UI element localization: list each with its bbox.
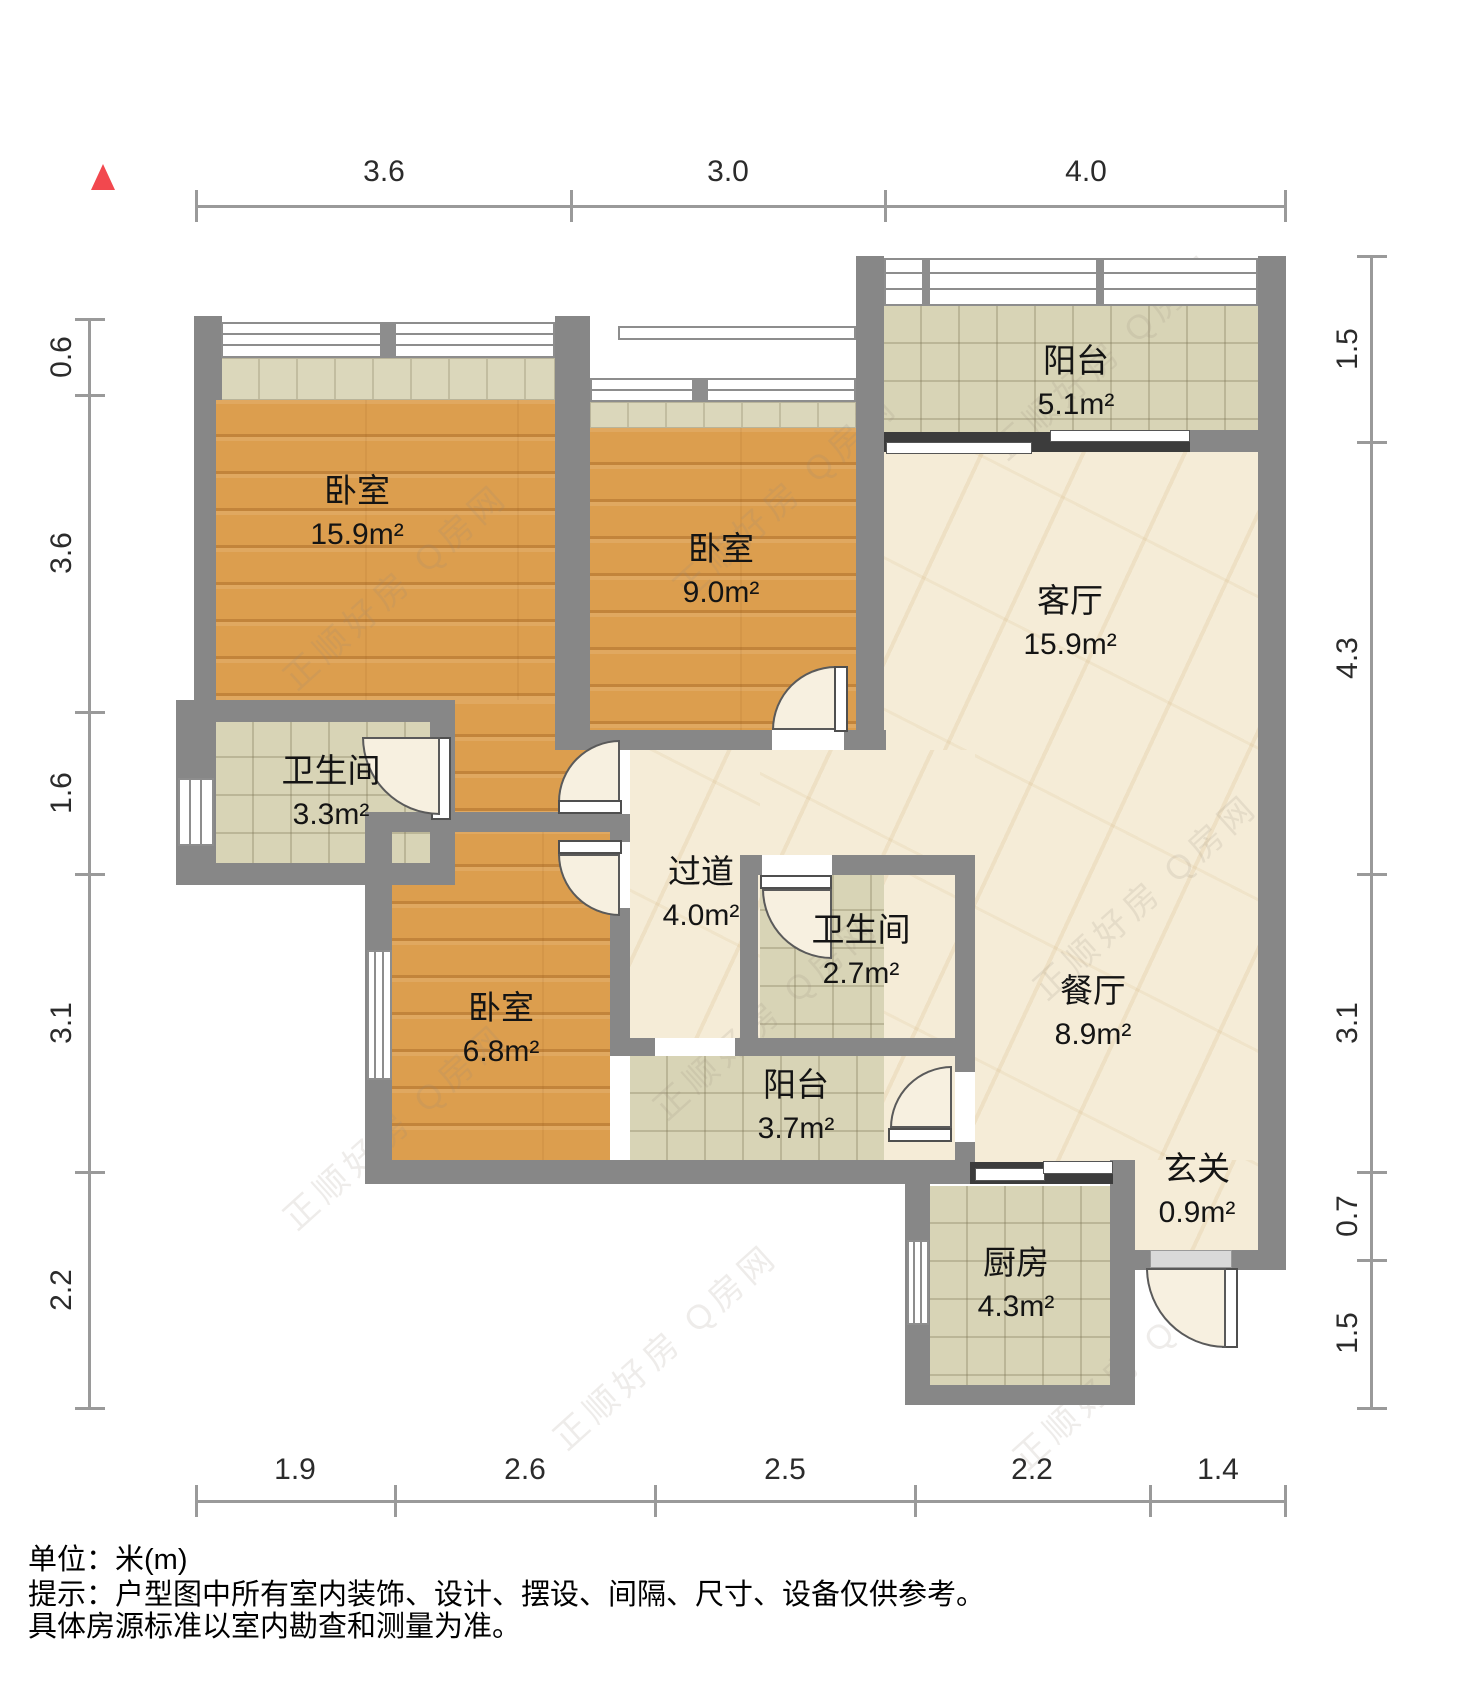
room-label-kitchen: 厨房4.3m² [978, 1240, 1055, 1328]
dim-tick [75, 1407, 105, 1410]
dim-value: 0.6 [45, 336, 79, 378]
window-line [920, 1242, 922, 1323]
dim-tick [1284, 190, 1287, 222]
wall [856, 256, 884, 750]
passage-opening [655, 1038, 735, 1056]
room-label-balcony-north: 阳台5.1m² [1038, 338, 1115, 426]
window-mullion [692, 378, 708, 402]
wall [610, 814, 630, 842]
window-bedroom-small [367, 950, 392, 1080]
room-label-bathroom-second: 卫生间2.7m² [812, 907, 911, 995]
dim-tick [654, 1485, 657, 1517]
dim-value: 2.2 [1011, 1453, 1053, 1487]
wall [365, 812, 630, 832]
window-line [886, 272, 1256, 274]
dim-line-bottom [196, 1500, 1286, 1503]
dim-value: 3.6 [363, 155, 405, 189]
dim-tick [570, 190, 573, 222]
dim-value: 2.5 [764, 1453, 806, 1487]
light-well [590, 340, 856, 378]
wall [365, 1160, 975, 1184]
window-line [592, 389, 854, 391]
sliding-door-panel [1043, 1161, 1113, 1174]
dim-line-top [196, 205, 1286, 208]
dim-tick [195, 1485, 198, 1517]
room-label-bedroom-small: 卧室6.8m² [463, 985, 540, 1073]
dim-value: 1.4 [1197, 1453, 1239, 1487]
room-label-dining-room: 餐厅8.9m² [1055, 968, 1132, 1056]
wall [1135, 1250, 1150, 1270]
dim-tick [1357, 1407, 1387, 1410]
wall [740, 875, 758, 1040]
sliding-door-panel [1050, 430, 1190, 442]
door-arc-entry [1146, 1268, 1226, 1348]
north-arrow-icon [91, 164, 115, 190]
sliding-door-panel [975, 1168, 1045, 1181]
door-opening [762, 855, 832, 875]
floor-plan: 正顺好房 Q房网 正顺好房 Q房网 正顺好房 Q房网 正顺好房 Q房网 正顺好房… [0, 0, 1466, 1688]
window-line [189, 780, 191, 844]
dim-value: 2.6 [504, 1453, 546, 1487]
dim-tick [75, 711, 105, 714]
window-mullion [380, 322, 396, 358]
dim-tick [1357, 1259, 1387, 1262]
wall [1110, 1160, 1135, 1405]
dim-value: 3.1 [1331, 1002, 1365, 1044]
dim-value: 3.1 [45, 1002, 79, 1044]
dim-value: 4.3 [1331, 637, 1365, 679]
dim-line-left [88, 319, 91, 1410]
room-label-bedroom-middle: 卧室9.0m² [683, 526, 760, 614]
wall [905, 1385, 1135, 1405]
room-label-hallway: 过道4.0m² [663, 849, 740, 937]
window-line [374, 952, 376, 1078]
wall [1232, 1250, 1286, 1270]
dim-tick [75, 873, 105, 876]
dim-value: 1.5 [1331, 328, 1365, 370]
dim-tick [75, 394, 105, 397]
dim-tick [75, 1171, 105, 1174]
dim-tick [394, 1485, 397, 1517]
dim-tick [884, 190, 887, 222]
note-tip-2: 具体房源标准以室内勘查和测量为准。 [28, 1612, 521, 1642]
window-kitchen [907, 1240, 929, 1325]
dim-tick [1149, 1485, 1152, 1517]
note-tip-1: 提示：户型图中所有室内装饰、设计、摆设、间隔、尺寸、设备仅供参考。 [28, 1580, 985, 1610]
entry-threshold [1150, 1250, 1232, 1268]
window-mullion [1096, 258, 1104, 306]
dim-tick [1357, 1171, 1387, 1174]
dim-tick [75, 318, 105, 321]
window-bathroom-master [178, 778, 214, 846]
door-leaf-bedroom-middle [834, 666, 848, 732]
dim-line-right [1370, 256, 1373, 1407]
bay-window-sill-middle [590, 402, 856, 428]
window-balcony-north [884, 258, 1258, 306]
dim-value: 1.5 [1331, 1312, 1365, 1354]
bay-window-sill-master [221, 358, 555, 400]
dim-value: 1.6 [45, 772, 79, 814]
door-leaf-balcony-south [888, 1128, 952, 1142]
dim-tick [1357, 255, 1387, 258]
door-opening [772, 730, 844, 750]
door-leaf-bedroom-master [558, 800, 622, 814]
room-label-bedroom-master: 卧室15.9m² [310, 468, 403, 556]
room-label-balcony-south: 阳台3.7m² [758, 1062, 835, 1150]
wall [1190, 430, 1258, 452]
room-label-entry: 玄关0.9m² [1159, 1146, 1236, 1234]
wall [194, 700, 455, 722]
dim-value: 4.0 [1065, 155, 1107, 189]
dim-value: 2.2 [45, 1269, 79, 1311]
window-line [913, 1242, 915, 1323]
window-outer-bedroom-middle [618, 326, 856, 340]
dim-value: 3.6 [45, 532, 79, 574]
window-mullion [922, 258, 930, 306]
dim-value: 1.9 [274, 1453, 316, 1487]
watermark: 正顺好房 Q房网 [541, 1230, 788, 1459]
wall [176, 863, 455, 885]
dim-tick [1357, 873, 1387, 876]
door-leaf-bathroom-second [760, 875, 832, 889]
dim-value: 3.0 [707, 155, 749, 189]
sliding-door-panel [886, 442, 1032, 454]
dim-tick [1357, 441, 1387, 444]
room-label-bathroom-master: 卫生间3.3m² [282, 748, 381, 836]
door-leaf-bedroom-small [558, 840, 622, 854]
window-line [200, 780, 202, 844]
window-line [886, 288, 1256, 290]
wall [610, 908, 630, 1056]
dim-tick [914, 1485, 917, 1517]
note-unit: 单位：米(m) [28, 1545, 187, 1575]
door-opening [955, 1072, 975, 1142]
room-label-living-room: 客厅15.9m² [1023, 578, 1116, 666]
dim-tick [195, 190, 198, 222]
dim-value: 0.7 [1331, 1195, 1365, 1237]
wall [555, 316, 590, 730]
wall [194, 316, 216, 712]
dim-tick [1284, 1485, 1287, 1517]
window-line [382, 952, 384, 1078]
wall [1258, 256, 1286, 1270]
